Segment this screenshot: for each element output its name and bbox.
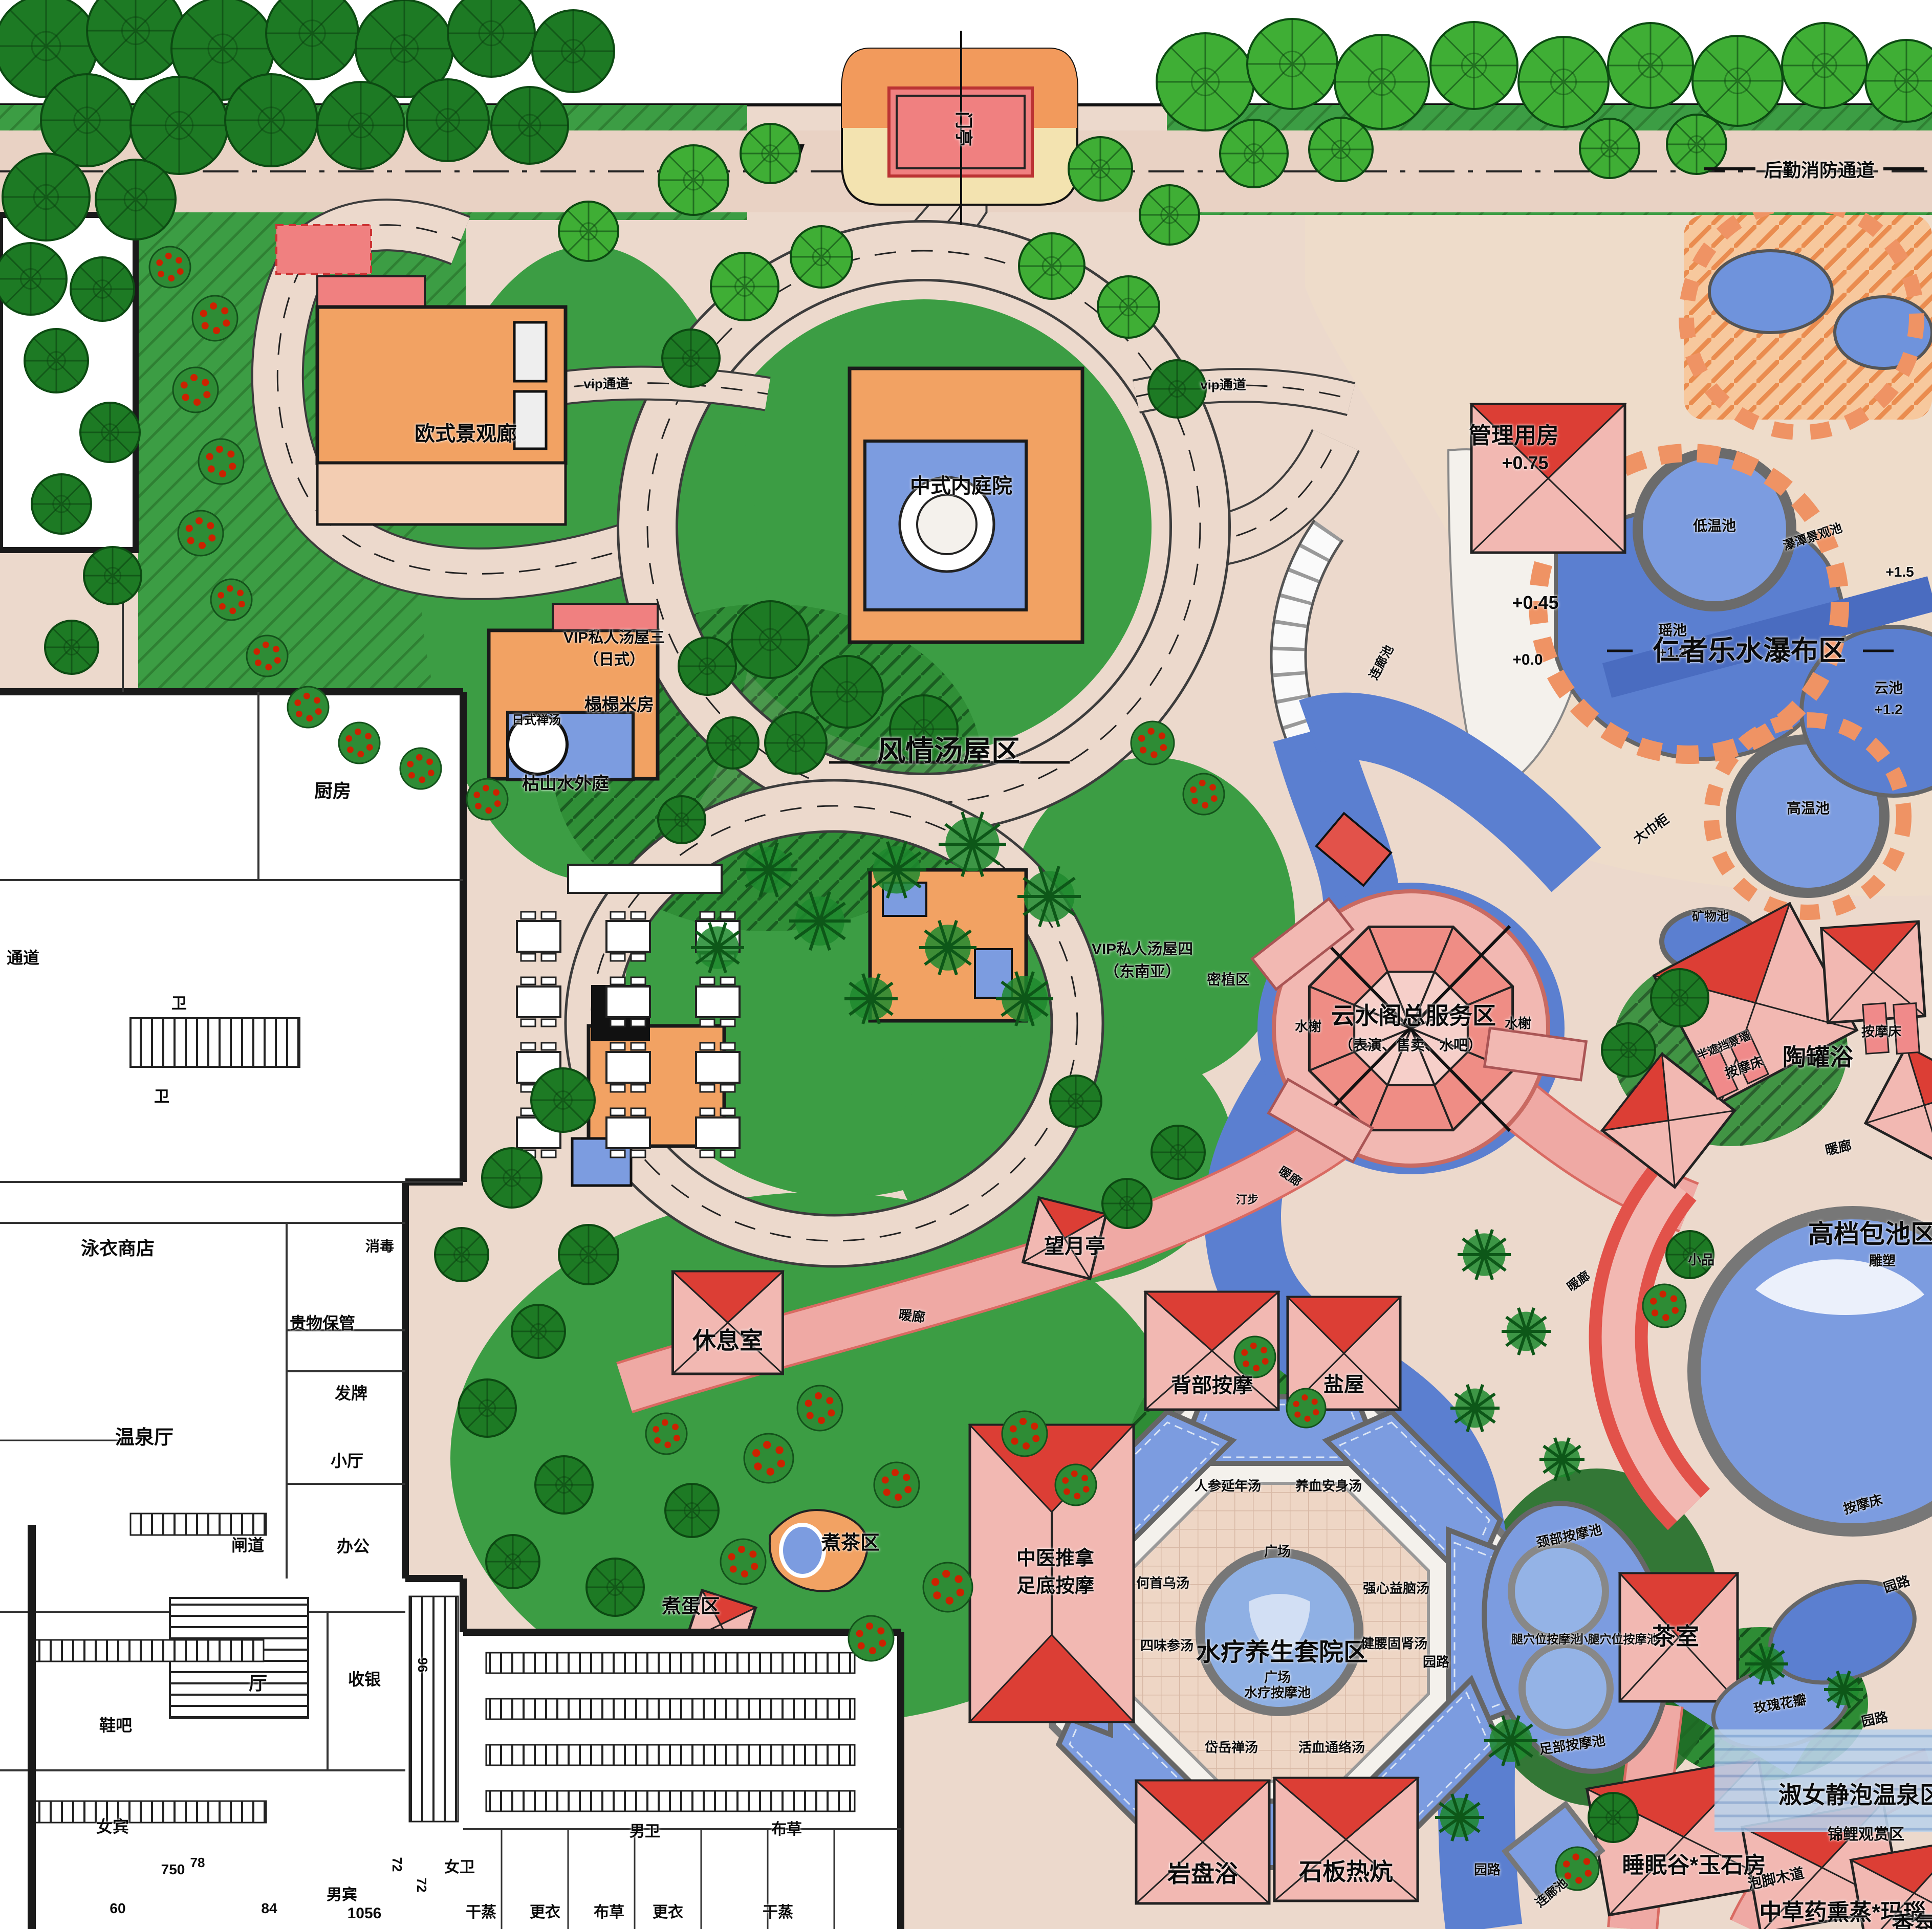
pavilion [1274,1778,1418,1901]
tree-icon [1019,233,1084,299]
tree-icon [890,695,958,763]
gate-building [842,31,1077,225]
shrub-icon [173,367,218,412]
tree-icon [96,160,176,239]
tree-icon [662,330,720,387]
pavilion [1471,404,1625,553]
tree-icon [317,82,404,169]
shrub-icon [339,722,380,763]
shrub-icon [1131,721,1174,764]
tree-icon [407,79,489,161]
shrub-icon [400,748,441,789]
tree-icon [1589,1793,1638,1842]
tree-icon [1692,36,1783,126]
tree-icon [1309,118,1373,181]
tree-icon [1608,23,1693,108]
tree-icon [1152,1126,1205,1179]
shrub-icon [1287,1389,1326,1428]
tree-icon [1069,137,1132,201]
tree-icon [1220,120,1288,187]
tree-icon [1157,33,1254,130]
tree-icon [1148,360,1206,418]
tree-icon [1651,969,1708,1026]
shrub-icon [211,579,252,620]
tree-icon [131,77,228,174]
shrub-icon [149,247,190,288]
tree-icon [658,796,705,843]
tree-icon [225,74,317,166]
shrub-icon [1055,1464,1096,1505]
shrub-icon [923,1563,972,1612]
tree-icon [491,87,568,164]
shrub-icon [849,1616,894,1661]
masterplan-canvas: 门亭后勤消防通道vip通道vip通道欧式景观廊管理用房中式内庭院VIP私人汤屋三… [0,0,1932,1929]
tree-icon [486,1535,539,1588]
tree-icon [531,1068,595,1132]
tree-icon [1602,1023,1655,1077]
tree-icon [1102,1179,1152,1228]
tree-icon [665,1484,719,1537]
shrub-icon [874,1462,919,1507]
tree-icon [435,1228,488,1281]
shrub-icon [288,687,329,728]
tree-icon [1666,1231,1713,1278]
tree-icon [587,1559,644,1616]
tree-icon [448,0,535,77]
shrub-icon [1556,1847,1599,1890]
tree-icon [41,74,133,166]
pavilion [1136,1781,1269,1903]
tree-icon [711,253,778,320]
tree-icon [1782,23,1867,108]
tcm-building [970,1425,1134,1722]
tree-icon [80,403,140,462]
tree-icon [1050,1076,1101,1127]
tree-icon [32,474,91,534]
shrub-icon [467,779,508,820]
tree-icon [1580,119,1639,178]
tree-icon [1430,22,1517,109]
shrub-icon [192,296,237,341]
tree-icon [1667,115,1726,174]
tree-icon [532,10,614,92]
tree-icon [1335,35,1429,129]
shrub-icon [797,1386,842,1431]
tree-icon [0,243,67,315]
tree-icon [84,547,141,604]
tree-icon [1098,276,1159,338]
tree-icon [71,257,134,321]
tree-icon [741,124,800,183]
tree-icon [679,638,736,695]
tree-icon [707,717,758,769]
tree-icon [559,1225,618,1284]
tree-icon [1140,185,1199,245]
pavilion [673,1272,783,1374]
tree-icon [459,1379,516,1437]
shrub-icon [247,635,288,676]
shrub-icon [1234,1336,1275,1377]
tree-icon [659,145,728,215]
tree-icon [1518,37,1609,127]
shrub-icon [1183,774,1224,815]
tree-icon [25,329,88,392]
pavilion [1620,1573,1738,1701]
tree-icon [791,226,852,288]
tree-icon [45,621,98,674]
shrub-icon [199,439,244,484]
tree-icon [732,601,809,678]
tree-icon [1247,19,1337,109]
tree-icon [482,1148,541,1208]
tree-icon [559,202,618,261]
shrub-icon [1643,1284,1686,1327]
tree-icon [512,1305,565,1358]
masterplan-drawing [0,0,1932,1929]
shrub-icon [721,1539,766,1584]
tree-icon [765,712,827,774]
shrub-icon [646,1413,687,1454]
tree-icon [535,1456,593,1514]
tree-icon [3,154,90,240]
shrub-icon [1002,1411,1047,1456]
shrub-icon [744,1434,793,1483]
shrub-icon [178,511,223,556]
tree-icon [811,656,883,728]
tree-icon [266,0,358,79]
